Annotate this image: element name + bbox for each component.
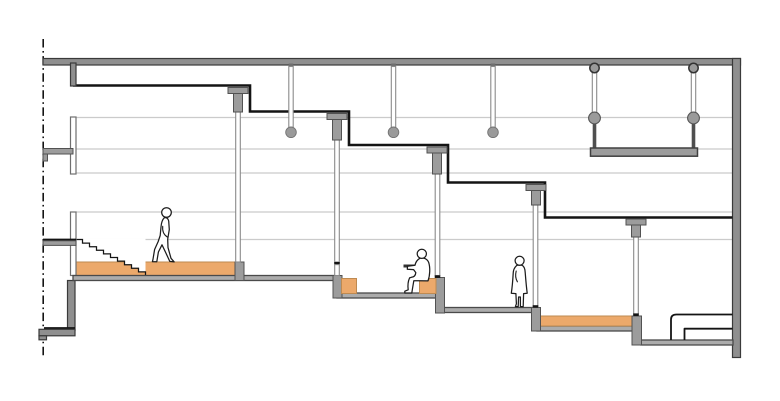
- step-block: [235, 262, 244, 281]
- pendant-light-bulb: [286, 127, 297, 138]
- architectural-section: [0, 0, 780, 401]
- standing-person-body: [511, 265, 527, 307]
- standing-person: [511, 256, 527, 306]
- left-wall-upper: [71, 117, 77, 174]
- step-block: [333, 276, 342, 299]
- bed-mattress-line: [685, 329, 733, 340]
- platform-hanger-rod: [691, 73, 695, 114]
- hanger-joint: [688, 112, 700, 124]
- left-boundary-lower: [39, 212, 76, 340]
- left-wall-lower: [68, 281, 76, 331]
- hanger-top-pin: [689, 63, 698, 72]
- floor-slab-level3: [441, 308, 537, 313]
- platform-hanger-rod: [592, 73, 596, 114]
- column-cap: [526, 185, 546, 191]
- step-block: [532, 308, 541, 332]
- column-cap: [228, 88, 248, 94]
- step-block: [632, 316, 642, 345]
- ledge-lip: [43, 154, 48, 161]
- left-boundary: [43, 63, 76, 174]
- hanger-joint: [589, 112, 601, 124]
- column-cap: [626, 219, 646, 225]
- right-wall: [733, 59, 741, 358]
- walking-person: [152, 208, 174, 262]
- orange-seat-cube: [342, 279, 357, 294]
- floor-slab-level5: [641, 340, 733, 345]
- column: [634, 237, 639, 314]
- hanger-top-pin: [590, 63, 599, 72]
- foundation-lip: [39, 336, 47, 340]
- column-cap: [427, 147, 447, 153]
- column-joint: [533, 305, 539, 308]
- column-cap-stem: [532, 191, 541, 206]
- column-base: [335, 265, 340, 276]
- column: [335, 140, 340, 262]
- column-joint: [633, 313, 639, 316]
- orange-floor-slab-level4: [540, 316, 637, 326]
- pendant-light-bulb: [388, 127, 399, 138]
- column: [236, 112, 241, 262]
- column: [533, 205, 538, 308]
- ledge: [43, 241, 76, 246]
- wall-post: [71, 63, 77, 86]
- column-cap-stem: [632, 225, 641, 237]
- walking-person-head: [162, 208, 172, 218]
- suspended-platform: [589, 63, 700, 156]
- floor-slab-level4: [537, 326, 641, 331]
- platform-deck: [591, 148, 698, 156]
- step-block: [436, 278, 445, 314]
- hanger-bar: [593, 124, 597, 149]
- pendant-lights: [286, 64, 499, 138]
- foundation-ledge: [39, 329, 75, 336]
- bed: [671, 315, 733, 341]
- bed-outline: [671, 315, 733, 341]
- section-drawing-canvas: [0, 0, 780, 401]
- column-cap-stem: [333, 120, 342, 141]
- column-joint: [435, 275, 441, 278]
- column-cap-stem: [433, 153, 442, 174]
- seated-person-head: [417, 249, 426, 258]
- column-cap: [327, 114, 347, 120]
- pendant-rod: [391, 67, 395, 128]
- orange-floor-slab-level1: [76, 262, 237, 276]
- pendant-light-bulb: [488, 127, 499, 138]
- standing-person-head: [515, 256, 524, 265]
- column-cap-stem: [234, 94, 243, 113]
- ledge: [43, 149, 73, 155]
- column: [435, 174, 440, 276]
- hanger-bar: [692, 124, 696, 149]
- floor-slab-level1: [73, 276, 337, 281]
- pendant-rod: [491, 67, 495, 128]
- pendant-rod: [289, 67, 293, 128]
